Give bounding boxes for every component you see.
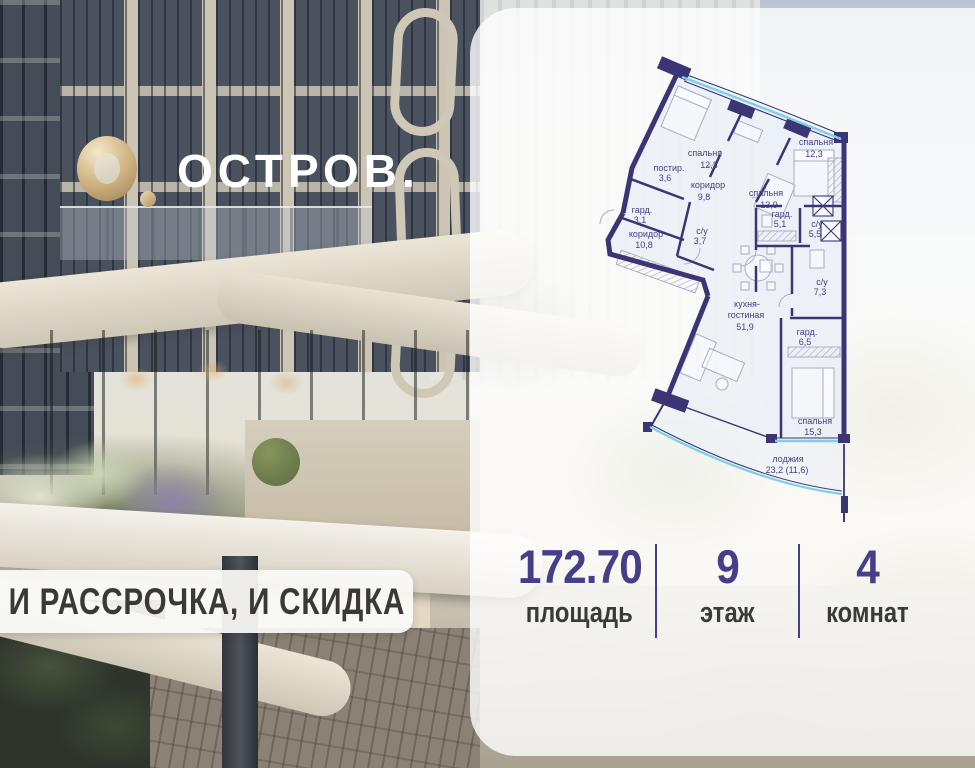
room-area: 9,8: [698, 192, 711, 202]
stats-row: 172.70 площадь 9 этаж 4 комнат: [470, 542, 975, 638]
photo-facade-rib: [389, 6, 460, 137]
promo-banner: И РАССРОЧКА, И СКИДКА: [0, 570, 413, 633]
logo-o-icon: [77, 136, 137, 201]
area-value: 172.70: [517, 542, 641, 591]
logo-dot-icon: [140, 191, 156, 207]
room-label: спальня: [799, 137, 833, 147]
stat-rooms: 4 комнат: [800, 542, 975, 638]
stat-floor: 9 этаж: [657, 542, 798, 638]
logo-text: ОСТРОВ.: [177, 148, 420, 194]
floor-label: этаж: [700, 597, 755, 630]
floor-value: 9: [716, 542, 739, 591]
room-area: 10,8: [635, 240, 653, 250]
room-label: с/у: [696, 226, 708, 236]
promo-banner-text: И РАССРОЧКА, И СКИДКА: [8, 581, 405, 623]
room-label: гард.: [797, 327, 818, 337]
room-area: 5,5: [809, 229, 822, 239]
room-label: с/у: [811, 219, 823, 229]
room-area: 3,1: [634, 215, 647, 225]
room-label: коридор: [629, 229, 663, 239]
room-area: 3,7: [694, 236, 707, 246]
room-area: 23,2 (11,6): [766, 465, 809, 475]
info-panel: спальня 12,3 спальня 13,9 спальня 12,3 п…: [470, 8, 975, 756]
room-label: лоджия: [772, 454, 803, 464]
room-area: 6,5: [799, 337, 812, 347]
room-label: спальня: [798, 416, 832, 426]
room-label: гард.: [632, 205, 653, 215]
room-area: 3,6: [659, 173, 672, 183]
room-label: спальня: [749, 188, 783, 198]
stat-area: 172.70 площадь: [470, 542, 655, 638]
room-label: постир.: [653, 163, 684, 173]
ad-creative: ОСТРОВ. И РАССРОЧКА, И СКИДКА: [0, 0, 975, 768]
room-label: гард.: [772, 209, 793, 219]
room-label: коридор: [691, 180, 725, 190]
room-label: с/у: [816, 277, 828, 287]
room-area: 51,9: [736, 322, 754, 332]
rooms-label: комнат: [826, 597, 909, 630]
room-area: 7,3: [814, 287, 827, 297]
room-label: спальня: [688, 148, 722, 158]
room-area: 15,3: [804, 427, 822, 437]
room-area: 5,1: [774, 219, 787, 229]
floor-plan: спальня 12,3 спальня 13,9 спальня 12,3 п…: [570, 50, 880, 530]
room-area: 12,3: [805, 149, 823, 159]
area-label: площадь: [526, 597, 633, 630]
room-area: 12,3: [700, 160, 718, 170]
rooms-value: 4: [856, 542, 879, 591]
room-label: кухня-: [734, 299, 760, 309]
room-label: гостиная: [728, 310, 765, 320]
photo-tree: [252, 438, 300, 486]
